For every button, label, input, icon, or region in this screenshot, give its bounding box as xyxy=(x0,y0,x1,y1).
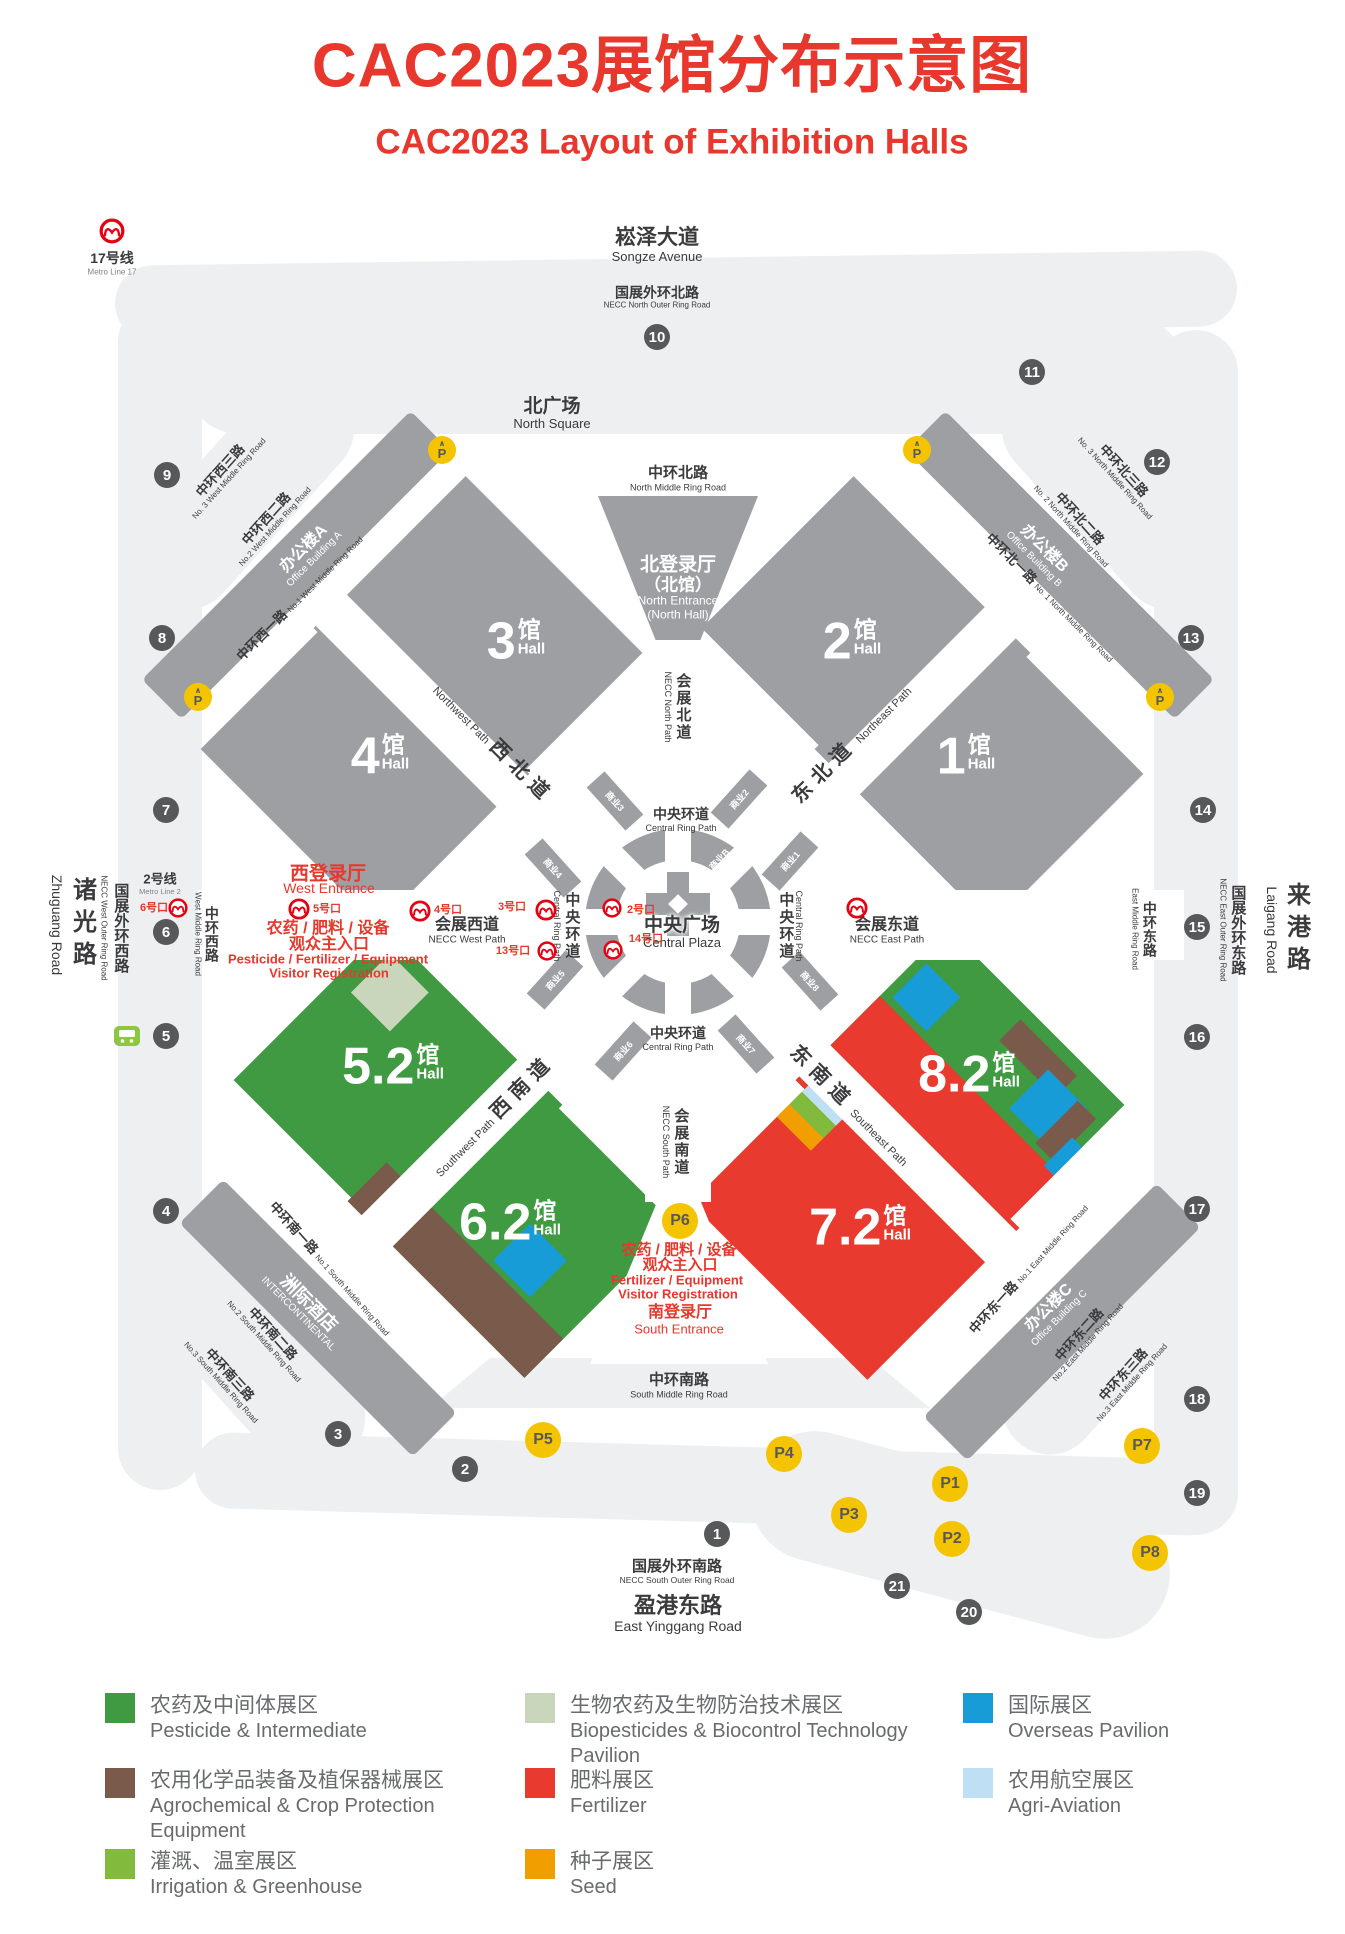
legend-en: Overseas Pavilion xyxy=(1008,1719,1169,1744)
hall-suffix: 馆 xyxy=(883,1205,906,1228)
south-middle-cjk: 中环南路 xyxy=(630,1373,728,1390)
gate-11: 11 xyxy=(1019,359,1045,385)
metro-line2-label-en: Metro Line 2 xyxy=(139,888,181,896)
hall-2-number: 2 xyxy=(823,619,852,666)
metro-exit-5-icon xyxy=(288,898,310,920)
hall-6-2-label: 6.2 馆Hall xyxy=(459,1200,561,1247)
hall-2-label: 2 馆Hall xyxy=(823,619,881,666)
hall-4-label: 4 馆Hall xyxy=(351,734,409,781)
south-entrance-label: 南登录厅 xyxy=(648,1304,712,1322)
parking-symbol: P xyxy=(194,694,203,707)
necc-west-path-road xyxy=(198,890,590,960)
legend-en: Pesticide & Intermediate xyxy=(150,1719,367,1744)
hall-suffix-en: Hall xyxy=(382,757,410,774)
metro-exit-6-icon xyxy=(168,898,188,918)
necc-north-path-cjk: 会展北道 xyxy=(674,673,691,741)
east-middle-en: East Middle Ring Road xyxy=(1130,888,1139,970)
necc-east-path-cjk: 会展东道 xyxy=(850,916,924,934)
south-middle-en: South Middle Ring Road xyxy=(630,1389,728,1399)
metro-line17-label-en: Metro Line 17 xyxy=(88,269,137,278)
parking-p8: P8 xyxy=(1132,1535,1168,1571)
gate-15: 15 xyxy=(1184,914,1210,940)
parking-p4: P4 xyxy=(766,1436,802,1472)
legend-en: Agrochemical & Crop Protection Equipment xyxy=(150,1794,525,1844)
necc-south-outer-cjk: 国展外环南路 xyxy=(620,1559,735,1576)
gate-4: 4 xyxy=(153,1198,179,1224)
gate-8: 8 xyxy=(149,625,175,651)
gate-7: 7 xyxy=(153,797,179,823)
north-entrance-cjk1: 北登录厅 xyxy=(638,554,719,575)
east-middle-cjk: 中环东路 xyxy=(1141,901,1157,957)
central-ring-bottom-label: 中央环道 Central Ring Path xyxy=(642,1026,713,1052)
yinggang-cjk: 盈港东路 xyxy=(614,1594,742,1619)
necc-north-outer-label: 国展外环北路 NECC North Outer Ring Road xyxy=(604,286,711,311)
legend-swatch xyxy=(105,1768,135,1798)
west-entrance-label-en: West Entrance xyxy=(283,881,375,897)
parking-p3: P3 xyxy=(831,1497,867,1533)
north-entrance-cjk2: （北馆） xyxy=(638,576,719,595)
legend-agrochemical: 农用化学品装备及植保器械展区 Agrochemical & Crop Prote… xyxy=(105,1768,525,1844)
parking-p1: P1 xyxy=(932,1466,968,1502)
metro-exit-6-label: 6号口 xyxy=(140,902,168,914)
songze-en: Songze Avenue xyxy=(612,249,703,264)
metro-exit-3-icon xyxy=(535,899,557,921)
gate-2: 2 xyxy=(452,1456,478,1482)
necc-north-outer-en: NECC North Outer Ring Road xyxy=(604,301,711,310)
hall-1-label: 1 馆Hall xyxy=(937,734,995,781)
legend-swatch xyxy=(525,1693,555,1723)
metro-line17-label: 17号线 xyxy=(90,251,134,267)
hall-8-2-label: 8.2 馆Hall xyxy=(918,1052,1020,1099)
hall-suffix: 馆 xyxy=(854,619,877,642)
legend-en: Irrigation & Greenhouse xyxy=(150,1875,362,1900)
hall-7-2-number: 7.2 xyxy=(809,1205,881,1252)
gate-17: 17 xyxy=(1184,1196,1210,1222)
west-middle-en: West Middle Ring Road xyxy=(193,892,202,976)
central-ring-top-label: 中央环道 Central Ring Path xyxy=(645,807,716,833)
metro-exit-14-icon xyxy=(603,940,623,960)
west-registration-l4: Visitor Registration xyxy=(269,967,389,982)
north-square-label: 北广场 North Square xyxy=(513,396,590,432)
necc-east-path-label: 会展东道 NECC East Path xyxy=(850,916,924,945)
north-square-cjk: 北广场 xyxy=(513,396,590,417)
gate-3: 3 xyxy=(325,1421,351,1447)
legend-cjk: 农用航空展区 xyxy=(1008,1768,1134,1794)
necc-south-path-en: NECC South Path xyxy=(661,1106,671,1179)
parking-symbol: P xyxy=(913,447,922,460)
parking-p7: P7 xyxy=(1124,1428,1160,1464)
metro-exit-3-label: 3号口 xyxy=(498,901,526,913)
parking-roof-icon: ∧P xyxy=(184,683,212,711)
hall-suffix-en: Hall xyxy=(518,642,546,659)
hall-suffix: 馆 xyxy=(533,1200,556,1223)
west-middle-cjk: 中环西路 xyxy=(203,906,219,962)
legend-swatch xyxy=(525,1849,555,1879)
gate-5: 5 xyxy=(153,1023,179,1049)
legend-en: Agri-Aviation xyxy=(1008,1794,1134,1819)
necc-west-path-label: 会展西道 NECC West Path xyxy=(428,916,505,945)
necc-west-path-en: NECC West Path xyxy=(428,934,505,945)
hall-suffix-en: Hall xyxy=(416,1067,444,1084)
hall-suffix: 馆 xyxy=(382,734,405,757)
north-entrance-en1: North Entrance xyxy=(638,595,719,608)
parking-roof-icon: ∧P xyxy=(1146,683,1174,711)
necc-east-path-road xyxy=(760,890,1184,960)
hall-suffix-en: Hall xyxy=(854,642,882,659)
legend-cjk: 国际展区 xyxy=(1008,1693,1169,1719)
parking-symbol: P xyxy=(1156,694,1165,707)
hall-3-label: 3 馆Hall xyxy=(487,619,545,666)
necc-south-path-cjk: 会展南道 xyxy=(672,1108,689,1176)
hall-5-2-label: 5.2 馆Hall xyxy=(342,1044,444,1091)
parking-p2: P2 xyxy=(934,1521,970,1557)
legend-cjk: 种子展区 xyxy=(570,1849,654,1875)
necc-west-outer-en: NECC West Outer Ring Road xyxy=(99,875,108,980)
gate-18: 18 xyxy=(1184,1386,1210,1412)
legend-swatch xyxy=(105,1693,135,1723)
metro-exit-2-icon xyxy=(602,898,622,918)
metro-exit-14-label: 14号口 xyxy=(629,933,663,945)
central-ring-right-en: Central Ring Path xyxy=(794,890,804,961)
hall-7-2-label: 7.2 馆Hall xyxy=(809,1205,911,1252)
metro-line17-icon xyxy=(99,218,125,244)
legend-swatch xyxy=(963,1693,993,1723)
legend-en: Seed xyxy=(570,1875,654,1900)
metro-exit-5-label: 5号口 xyxy=(313,903,341,915)
legend-cjk: 肥料展区 xyxy=(570,1768,654,1794)
necc-west-path-cjk: 会展西道 xyxy=(428,916,505,934)
metro-exit-4-label: 4号口 xyxy=(434,904,462,916)
page-subtitle: CAC2023 Layout of Exhibition Halls xyxy=(375,122,968,161)
parking-symbol: P xyxy=(438,447,447,460)
legend-fertilizer: 肥料展区 Fertilizer xyxy=(525,1768,955,1819)
necc-north-outer-cjk: 国展外环北路 xyxy=(604,286,711,302)
legend-cjk: 生物农药及生物防治技术展区 xyxy=(570,1693,955,1719)
gate-21: 21 xyxy=(884,1573,910,1599)
central-ring-cjk: 中央环道 xyxy=(645,807,716,823)
bus-icon xyxy=(114,1026,140,1046)
legend-swatch xyxy=(105,1849,135,1879)
legend-en: Fertilizer xyxy=(570,1794,654,1819)
north-entrance-en2: (North Hall) xyxy=(638,608,719,621)
south-middle-ring-label: 中环南路 South Middle Ring Road xyxy=(630,1373,728,1400)
hall-suffix-en: Hall xyxy=(883,1228,911,1245)
gate-1: 1 xyxy=(704,1521,730,1547)
parking-roof-icon: ∧P xyxy=(903,436,931,464)
legend-en: Biopesticides & Biocontrol Technology Pa… xyxy=(570,1719,955,1769)
hall-5-2-number: 5.2 xyxy=(342,1044,414,1091)
hall-suffix: 馆 xyxy=(992,1052,1015,1075)
yinggang-en: East Yinggang Road xyxy=(614,1618,742,1634)
songze-avenue-label: 崧泽大道 Songze Avenue xyxy=(612,226,703,264)
north-square-en: North Square xyxy=(513,417,590,432)
north-entrance-label: 北登录厅 （北馆） North Entrance (North Hall) xyxy=(638,554,719,621)
legend-cjk: 灌溉、温室展区 xyxy=(150,1849,362,1875)
necc-east-outer-cjk: 国展外环东路 xyxy=(1229,885,1246,975)
legend-seed: 种子展区 Seed xyxy=(525,1849,955,1900)
zhuguang-road-en: Zhuguang Road xyxy=(48,875,64,975)
parking-roof-icon: ∧P xyxy=(428,436,456,464)
page-title: CAC2023展馆分布示意图 xyxy=(312,31,1032,100)
hall-suffix-en: Hall xyxy=(992,1075,1020,1092)
gate-13: 13 xyxy=(1178,625,1204,651)
gate-6: 6 xyxy=(153,919,179,945)
legend-swatch xyxy=(525,1768,555,1798)
cac2023-hall-map: CAC2023展馆分布示意图 CAC2023 Layout of Exhibit… xyxy=(0,0,1345,1934)
laigang-road-en: Laigang Road xyxy=(1263,886,1279,973)
metro-exit-13-label: 13号口 xyxy=(496,945,530,957)
metro-line2-label: 2号线 xyxy=(143,873,176,888)
legend-pesticide: 农药及中间体展区 Pesticide & Intermediate xyxy=(105,1693,525,1744)
north-middle-ring-label: 中环北路 North Middle Ring Road xyxy=(630,466,726,493)
necc-south-outer-label: 国展外环南路 NECC South Outer Ring Road xyxy=(620,1559,735,1585)
hall-3-number: 3 xyxy=(487,619,516,666)
legend-cjk: 农用化学品装备及植保器械展区 xyxy=(150,1768,525,1794)
gate-19: 19 xyxy=(1184,1480,1210,1506)
hall-suffix: 馆 xyxy=(968,734,991,757)
metro-exit-4-icon xyxy=(409,900,431,922)
songze-cjk: 崧泽大道 xyxy=(612,226,703,250)
legend-overseas: 国际展区 Overseas Pavilion xyxy=(963,1693,1293,1744)
hall-8-2-number: 8.2 xyxy=(918,1052,990,1099)
gate-10: 10 xyxy=(644,324,670,350)
legend-cjk: 农药及中间体展区 xyxy=(150,1693,367,1719)
zhuguang-road-cjk: 诸光路 xyxy=(68,877,95,973)
central-ring-left-cjk: 中央环道 xyxy=(563,892,580,960)
gate-12: 12 xyxy=(1144,449,1170,475)
gate-9: 9 xyxy=(154,462,180,488)
yinggang-road-label: 盈港东路 East Yinggang Road xyxy=(614,1594,742,1634)
gate-20: 20 xyxy=(956,1599,982,1625)
hall-suffix: 馆 xyxy=(518,619,541,642)
metro-exit-2-label: 2号口 xyxy=(627,904,655,916)
south-registration-l4: Visitor Registration xyxy=(618,1288,738,1303)
hall-suffix: 馆 xyxy=(416,1044,439,1067)
south-entrance-label-en: South Entrance xyxy=(634,1323,724,1338)
legend-agri-aviation: 农用航空展区 Agri-Aviation xyxy=(963,1768,1293,1819)
gate-14: 14 xyxy=(1190,797,1216,823)
metro-exit-13-icon xyxy=(537,941,557,961)
hall-suffix-en: Hall xyxy=(533,1223,561,1240)
central-ring-cjk: 中央环道 xyxy=(642,1026,713,1042)
legend-swatch xyxy=(963,1768,993,1798)
gate-16: 16 xyxy=(1184,1024,1210,1050)
parking-p6: P6 xyxy=(662,1203,698,1239)
legend-biopesticides: 生物农药及生物防治技术展区 Biopesticides & Biocontrol… xyxy=(525,1693,955,1769)
legend-irrigation: 灌溉、温室展区 Irrigation & Greenhouse xyxy=(105,1849,525,1900)
hall-1-number: 1 xyxy=(937,734,966,781)
laigang-road-cjk: 来港路 xyxy=(1282,882,1309,978)
hall-6-2-number: 6.2 xyxy=(459,1200,531,1247)
hall-suffix-en: Hall xyxy=(968,757,996,774)
north-middle-en: North Middle Ring Road xyxy=(630,482,726,492)
metro-east-icon xyxy=(846,897,868,919)
necc-north-path-en: NECC North Path xyxy=(663,671,673,742)
central-ring-en: Central Ring Path xyxy=(642,1042,713,1052)
necc-east-outer-en: NECC East Outer Ring Road xyxy=(1218,878,1227,981)
central-ring-right-cjk: 中央环道 xyxy=(777,892,794,960)
central-ring-en: Central Ring Path xyxy=(645,823,716,833)
necc-west-outer-cjk: 国展外环西路 xyxy=(112,883,129,973)
hall-4-number: 4 xyxy=(351,734,380,781)
necc-east-path-en: NECC East Path xyxy=(850,934,924,945)
parking-p5: P5 xyxy=(525,1422,561,1458)
north-middle-cjk: 中环北路 xyxy=(630,466,726,483)
necc-south-outer-en: NECC South Outer Ring Road xyxy=(620,1576,735,1586)
